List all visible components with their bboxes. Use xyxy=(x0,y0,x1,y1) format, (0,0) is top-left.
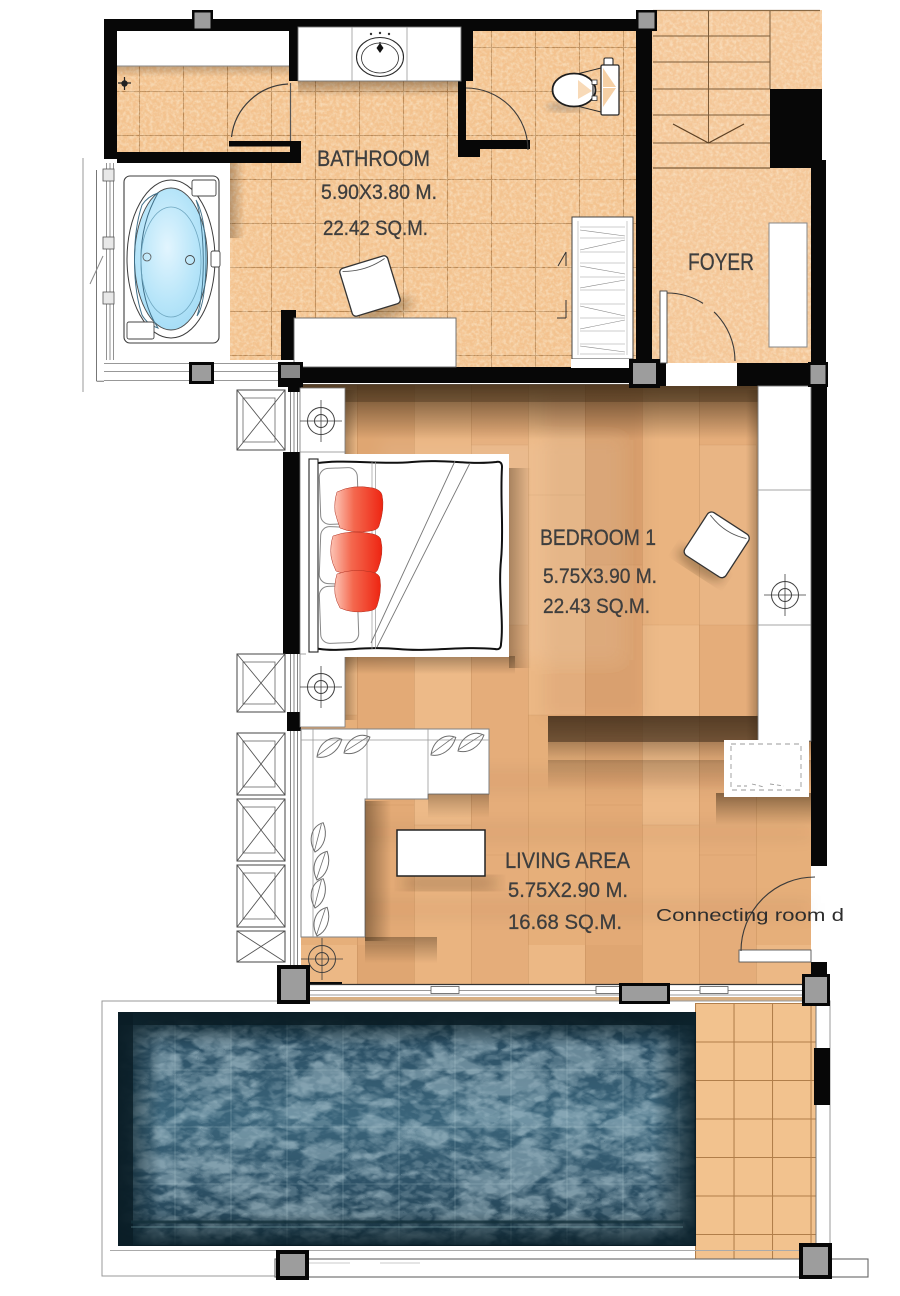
svg-text:Connecting room d: Connecting room d xyxy=(656,905,844,925)
svg-text:22.42 SQ.M.: 22.42 SQ.M. xyxy=(323,217,428,240)
svg-text:22.43 SQ.M.: 22.43 SQ.M. xyxy=(543,595,650,618)
svg-text:LIVING AREA: LIVING AREA xyxy=(505,848,630,873)
svg-text:BATHROOM: BATHROOM xyxy=(317,146,430,171)
svg-text:BEDROOM 1: BEDROOM 1 xyxy=(540,525,656,550)
svg-text:16.68 SQ.M.: 16.68 SQ.M. xyxy=(508,911,622,934)
svg-text:FOYER: FOYER xyxy=(688,249,754,276)
svg-text:5.75X3.90 M.: 5.75X3.90 M. xyxy=(543,565,657,588)
svg-text:5.75X2.90 M.: 5.75X2.90 M. xyxy=(508,879,628,902)
svg-text:5.90X3.80 M.: 5.90X3.80 M. xyxy=(321,181,437,204)
